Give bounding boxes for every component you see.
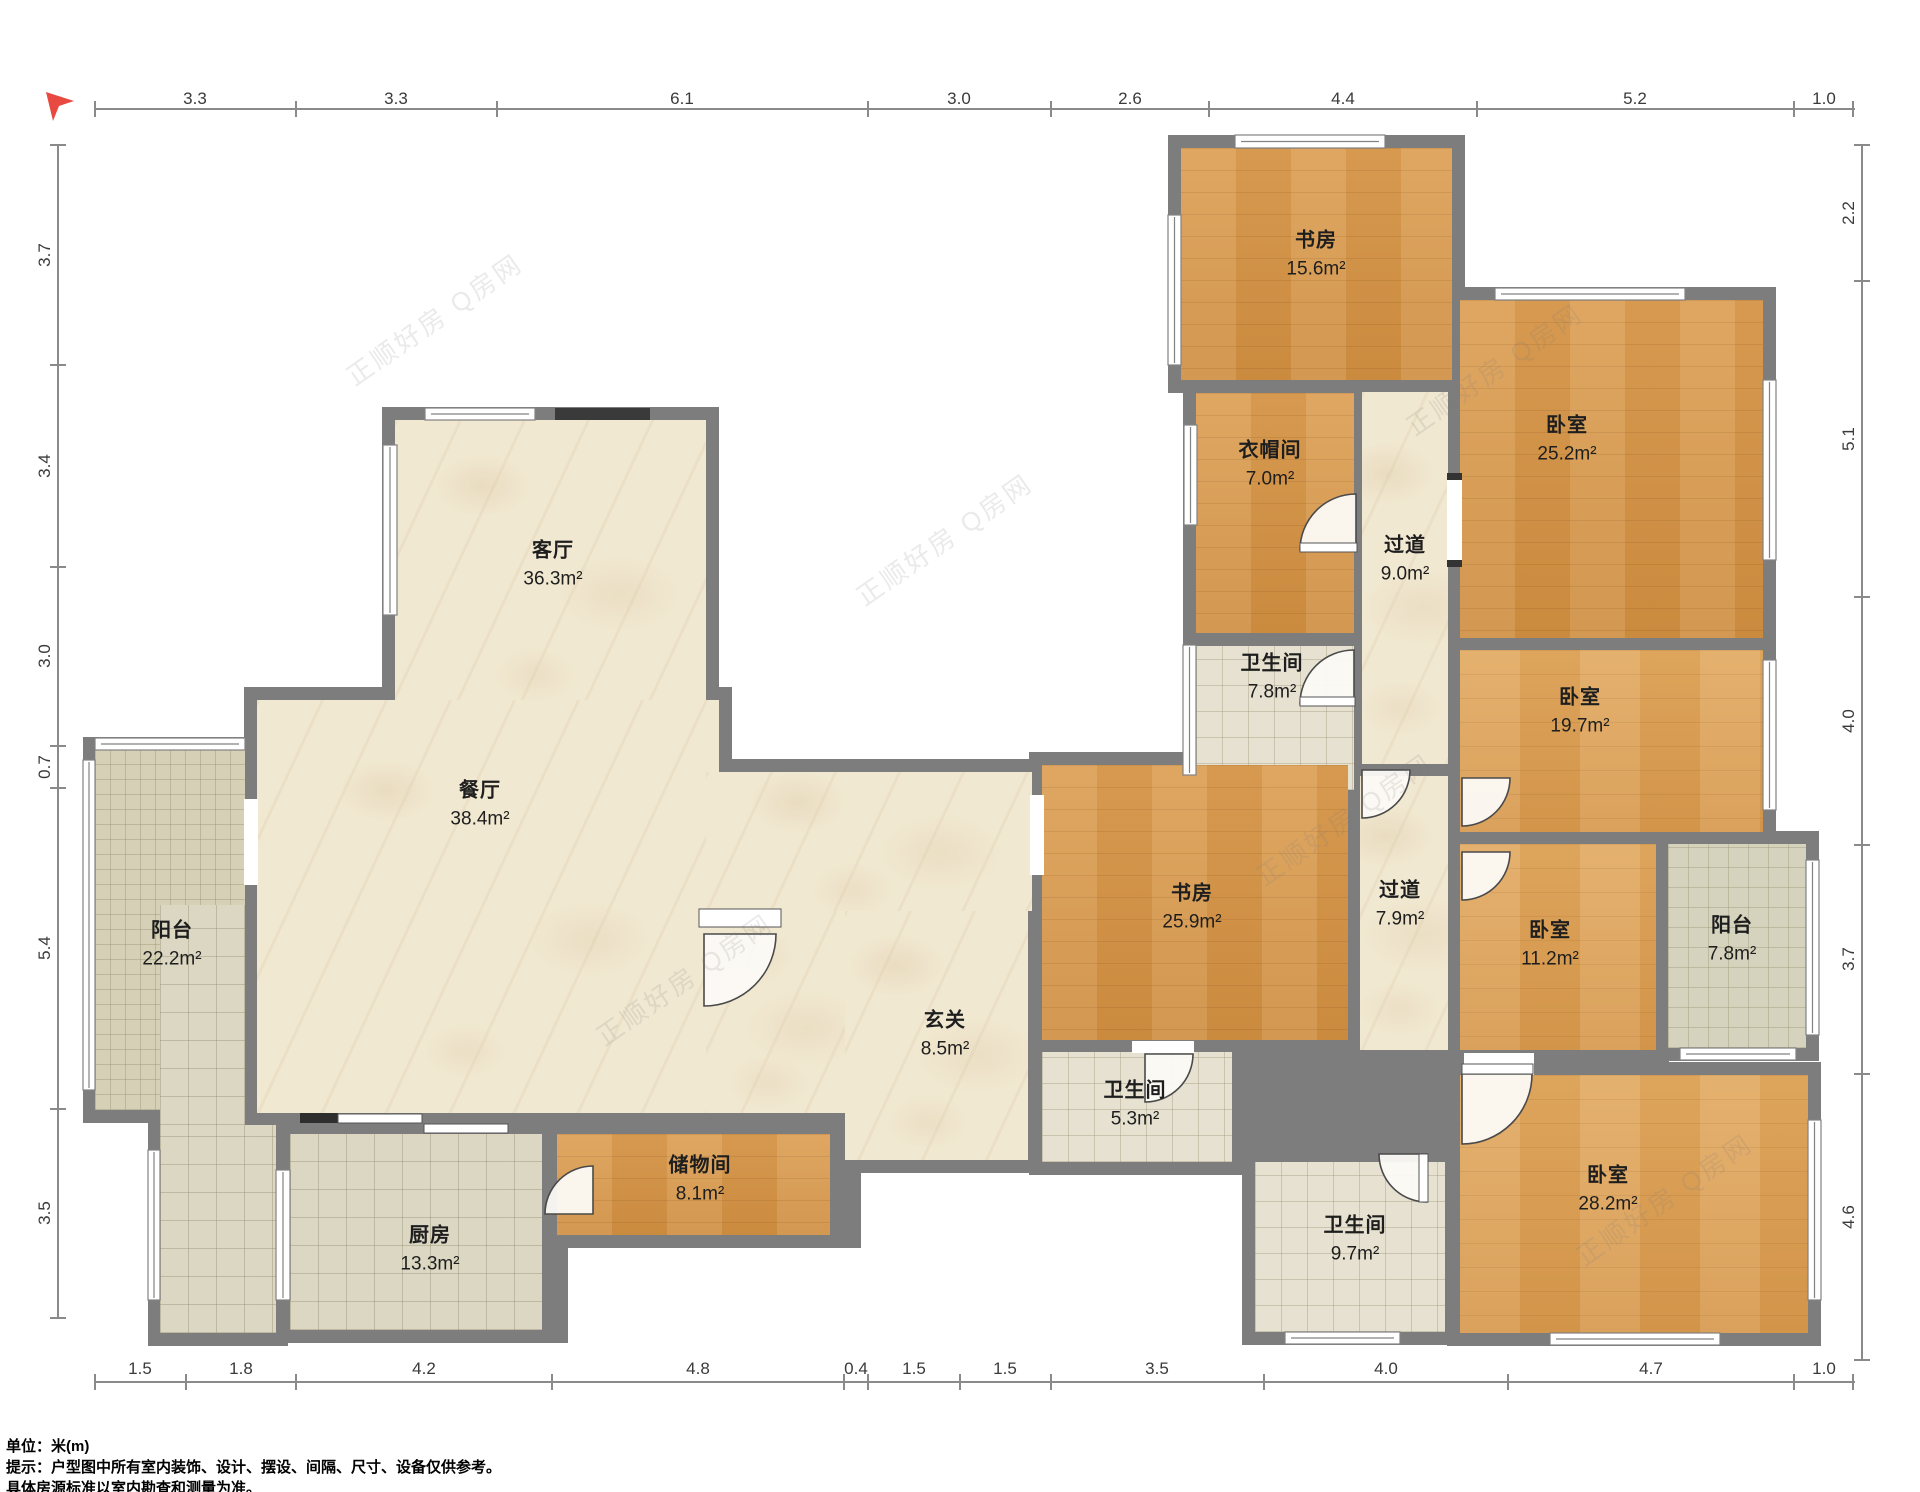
dim-right-2: 4.0 [1839,709,1859,733]
room-name: 卧室 [1578,1162,1637,1191]
room-name: 卧室 [1550,684,1609,713]
room-hall-band [706,772,1032,911]
dim-top-0: 3.3 [183,89,207,109]
room-name: 厨房 [400,1222,459,1251]
tip-note-1: 提示：户型图中所有室内装饰、设计、摆设、间隔、尺寸、设备仅供参考。 [6,1457,501,1478]
room-area: 36.3m² [523,566,582,594]
dim-bottom-1: 1.8 [229,1359,253,1379]
room-area: 28.2m² [1578,1191,1637,1219]
room-name: 过道 [1376,877,1425,906]
dim-top-5: 4.4 [1331,89,1355,109]
room-label-bath-53: 卫生间 5.3m² [1104,1077,1167,1134]
wall [1232,1040,1372,1170]
room-label-study-mid: 书房 25.9m² [1162,880,1221,937]
room-label-corridor-9: 过道 9.0m² [1381,532,1430,589]
dim-bottom-4: 0.4 [844,1359,868,1379]
dim-right-3: 3.7 [1839,947,1859,971]
room-name: 阳台 [142,917,201,946]
room-label-bedroom-197: 卧室 19.7m² [1550,684,1609,741]
room-area: 7.9m² [1376,906,1425,934]
room-area: 9.0m² [1381,561,1430,589]
room-cloakroom [1196,393,1354,633]
room-label-balcony-78: 阳台 7.8m² [1708,912,1757,969]
room-area: 11.2m² [1521,946,1579,974]
room-name: 阳台 [1708,912,1757,941]
room-name: 储物间 [669,1152,732,1181]
dim-bottom-5: 1.5 [902,1359,926,1379]
room-name: 过道 [1381,532,1430,561]
watermark: 正顺好房 Q房网 [848,464,1039,613]
room-area: 7.8m² [1241,679,1304,707]
room-name: 卫生间 [1104,1077,1167,1106]
room-passage-low [160,1125,276,1333]
room-label-bath-78: 卫生间 7.8m² [1241,650,1304,707]
dim-top-6: 5.2 [1623,89,1647,109]
room-label-bath-97: 卫生间 9.7m² [1324,1212,1387,1269]
room-label-balcony-22: 阳台 22.2m² [142,917,201,974]
dim-left-3: 0.7 [35,755,55,779]
room-area: 5.3m² [1104,1106,1167,1134]
room-dining [257,700,719,1113]
dim-top-7: 1.0 [1812,89,1836,109]
room-label-study-top: 书房 15.6m² [1286,227,1345,284]
dim-top-2: 6.1 [670,89,694,109]
room-name: 书房 [1286,227,1345,256]
dim-bottom-6: 1.5 [993,1359,1017,1379]
room-label-kitchen: 厨房 13.3m² [400,1222,459,1279]
dim-left-1: 3.4 [35,454,55,478]
dim-right-1: 5.1 [1839,427,1859,451]
room-label-cloakroom: 衣帽间 7.0m² [1239,437,1302,494]
dim-bottom-8: 4.0 [1374,1359,1398,1379]
room-name: 卫生间 [1241,650,1304,679]
dim-left-5: 3.5 [35,1201,55,1225]
room-area: 9.7m² [1324,1241,1387,1269]
dim-right-0: 2.2 [1839,201,1859,225]
room-area: 15.6m² [1286,256,1345,284]
room-bedroom-197 [1460,650,1763,832]
room-name: 卫生间 [1324,1212,1387,1241]
dim-right-4: 4.6 [1839,1205,1859,1229]
dim-bottom-7: 3.5 [1145,1359,1169,1379]
room-label-bedroom-112: 卧室 11.2m² [1521,917,1579,974]
footnotes: 单位：米(m) 提示：户型图中所有室内装饰、设计、摆设、间隔、尺寸、设备仅供参考… [6,1436,501,1492]
room-area: 8.1m² [669,1181,732,1209]
room-name: 卧室 [1537,412,1596,441]
dim-bottom-10: 1.0 [1812,1359,1836,1379]
room-label-bedroom-25: 卧室 25.2m² [1537,412,1596,469]
room-area: 22.2m² [142,946,201,974]
room-area: 38.4m² [450,806,509,834]
room-area: 7.0m² [1239,466,1302,494]
room-label-storage: 储物间 8.1m² [669,1152,732,1209]
dim-left-2: 3.0 [35,644,55,668]
room-label-bedroom-282: 卧室 28.2m² [1578,1162,1637,1219]
dim-left-4: 5.4 [35,936,55,960]
dim-top-1: 3.3 [384,89,408,109]
room-label-corridor-79: 过道 7.9m² [1376,877,1425,934]
room-area: 19.7m² [1550,713,1609,741]
room-label-entry-hall: 玄关 8.5m² [921,1007,970,1064]
room-name: 衣帽间 [1239,437,1302,466]
room-name: 餐厅 [450,777,509,806]
tip-note-2: 具体房源标准以室内勘查和测量为准。 [6,1478,501,1492]
dim-left-0: 3.7 [35,243,55,267]
dim-top-3: 3.0 [947,89,971,109]
watermark: 正顺好房 Q房网 [338,244,529,393]
room-area: 8.5m² [921,1036,970,1064]
floor-plan: 正顺好房 Q房网 正顺好房 Q房网 正顺好房 Q房网 正顺好房 Q房网 正顺好房… [0,0,1920,1492]
room-name: 客厅 [523,537,582,566]
room-name: 玄关 [921,1007,970,1036]
room-name: 书房 [1162,880,1221,909]
room-label-living: 客厅 36.3m² [523,537,582,594]
room-area: 13.3m² [400,1251,459,1279]
dim-top-4: 2.6 [1118,89,1142,109]
room-label-dining: 餐厅 38.4m² [450,777,509,834]
room-area: 7.8m² [1708,941,1757,969]
dim-bottom-2: 4.2 [412,1359,436,1379]
room-area: 25.9m² [1162,909,1221,937]
unit-note: 单位：米(m) [6,1436,501,1457]
north-arrow-icon [46,92,74,121]
dim-bottom-9: 4.7 [1639,1359,1663,1379]
room-name: 卧室 [1521,917,1579,946]
dim-bottom-0: 1.5 [128,1359,152,1379]
room-area: 25.2m² [1537,441,1596,469]
dim-bottom-3: 4.8 [686,1359,710,1379]
